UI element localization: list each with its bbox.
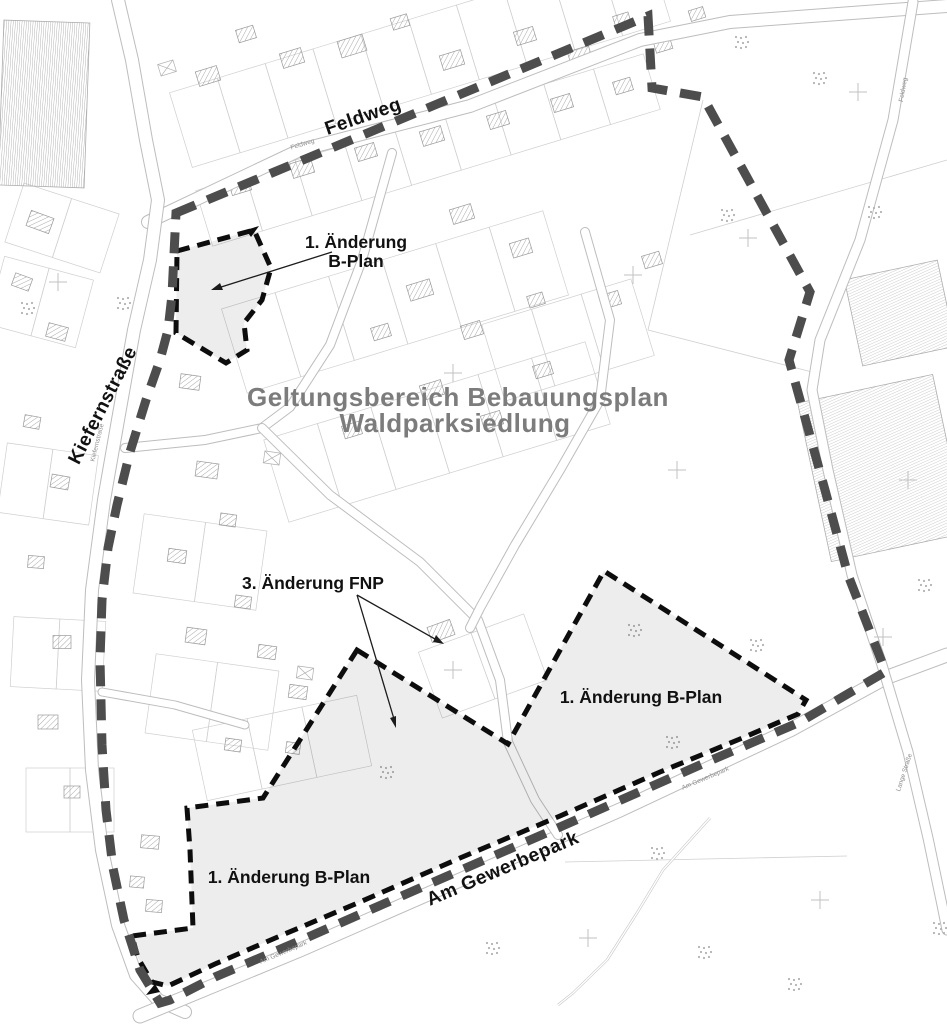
tree-dot — [825, 77, 827, 79]
tree-dot — [491, 943, 493, 945]
tree-dot — [31, 312, 33, 314]
tree-dot — [868, 206, 870, 208]
tree-dot — [870, 211, 872, 213]
tree-dot — [26, 303, 28, 305]
tree-dot — [880, 211, 882, 213]
tree-dot — [710, 951, 712, 953]
tree-dot — [737, 41, 739, 43]
tree-dot — [752, 644, 754, 646]
tree-dot — [930, 584, 932, 586]
tree-dot — [918, 589, 920, 591]
building — [641, 251, 662, 269]
tree-dot — [28, 308, 30, 310]
parcel — [10, 617, 60, 689]
tree-dot — [698, 946, 700, 948]
tree-dot — [928, 579, 930, 581]
tree-dot — [726, 210, 728, 212]
tree-dot — [703, 947, 705, 949]
tree-cluster — [486, 942, 500, 955]
tree-dot — [122, 298, 124, 300]
tree-dot — [117, 307, 119, 309]
tree-dot — [788, 978, 790, 980]
building — [235, 25, 256, 43]
tree-dot — [923, 580, 925, 582]
tree-dot — [127, 297, 129, 299]
building — [26, 210, 54, 233]
street-casing — [148, 6, 947, 222]
annotation-area-bottom: 1. Änderung B-Plan — [208, 867, 370, 887]
parcel — [26, 768, 70, 832]
planning-map: Feldweg Kiefernstraße Am Gewerbepark Gel… — [0, 0, 947, 1024]
tree-dot — [755, 650, 757, 652]
building — [38, 715, 58, 729]
parcel-block — [170, 0, 671, 167]
tree-dot — [750, 639, 752, 641]
tree-dot — [798, 978, 800, 980]
building — [460, 320, 483, 339]
tree-dot — [793, 979, 795, 981]
survey-cross — [624, 266, 642, 284]
building — [532, 361, 553, 379]
survey-cross — [49, 273, 67, 291]
building — [23, 415, 41, 430]
building — [64, 786, 80, 798]
parcel — [194, 522, 267, 610]
building — [486, 110, 509, 129]
parcel-block — [5, 183, 119, 273]
building — [234, 595, 252, 609]
tree-cluster — [721, 209, 735, 222]
tree-cluster — [21, 302, 35, 315]
industrial-building — [0, 20, 90, 188]
parcel — [217, 64, 288, 153]
tree-dot — [703, 957, 705, 959]
annotation-area1-line1: 1. Änderung — [305, 232, 407, 252]
tree-cluster — [788, 978, 802, 991]
survey-cross — [579, 929, 597, 947]
tree-dot — [820, 78, 822, 80]
tree-dot — [122, 308, 124, 310]
building — [513, 26, 536, 45]
tree-dot — [878, 206, 880, 208]
building — [11, 273, 32, 291]
tree-cluster — [698, 946, 712, 959]
tree-dot — [721, 209, 723, 211]
tree-dot — [943, 932, 945, 934]
tree-dot — [813, 82, 815, 84]
map-canvas: Feldweg Kiefernstraße Am Gewerbepark Gel… — [0, 0, 947, 1024]
tree-dot — [486, 952, 488, 954]
tree-dot — [33, 307, 35, 309]
tree-dot — [795, 984, 797, 986]
building — [46, 323, 69, 342]
tree-dot — [938, 923, 940, 925]
building — [427, 619, 455, 642]
garage-symbol — [158, 60, 177, 76]
building — [179, 374, 201, 391]
tree-dot — [656, 858, 658, 860]
building — [337, 34, 367, 58]
building — [195, 461, 219, 479]
map-title-line2: Waldparksiedlung — [340, 408, 571, 438]
tree-dot — [742, 42, 744, 44]
parcel — [206, 662, 279, 750]
building — [390, 14, 410, 30]
building — [140, 835, 159, 850]
tree-dot — [31, 302, 33, 304]
tree-dot — [708, 946, 710, 948]
tree-dot — [815, 77, 817, 79]
tree-dot — [873, 217, 875, 219]
tree-cluster — [117, 297, 131, 310]
tree-dot — [708, 956, 710, 958]
tree-dot — [818, 83, 820, 85]
tree-dot — [23, 307, 25, 309]
tree-dot — [26, 313, 28, 315]
tree-dot — [498, 947, 500, 949]
tree-dot — [651, 857, 653, 859]
tree-dot — [760, 649, 762, 651]
tree-cluster — [651, 847, 665, 860]
change-area-1 — [176, 230, 271, 363]
tree-dot — [745, 46, 747, 48]
tree-cluster — [918, 579, 932, 592]
tree-dot — [933, 932, 935, 934]
tree-cluster — [735, 36, 749, 49]
tree-dot — [928, 589, 930, 591]
tree-dot — [496, 942, 498, 944]
tree-dot — [868, 216, 870, 218]
building — [419, 126, 444, 147]
garage-symbol — [296, 666, 314, 680]
building — [406, 279, 434, 301]
tree-dot — [745, 36, 747, 38]
building — [50, 474, 70, 490]
tree-dot — [755, 640, 757, 642]
tree-dot — [486, 942, 488, 944]
parcel-block — [133, 514, 267, 610]
building — [688, 7, 706, 22]
tree-dot — [491, 953, 493, 955]
tree-dot — [760, 639, 762, 641]
building — [257, 644, 277, 659]
street — [88, 0, 185, 1012]
tree-cluster — [750, 639, 764, 652]
field-line — [648, 100, 703, 330]
tree-dot — [788, 988, 790, 990]
tree-dot — [938, 933, 940, 935]
tree-dot — [700, 951, 702, 953]
tree-dot — [731, 209, 733, 211]
survey-cross — [444, 364, 462, 382]
tree-dot — [923, 590, 925, 592]
parcel — [192, 719, 262, 801]
tree-dot — [823, 82, 825, 84]
tree-dot — [721, 219, 723, 221]
tree-dot — [750, 649, 752, 651]
building — [370, 323, 391, 341]
tree-dot — [757, 645, 759, 647]
tree-dot — [21, 312, 23, 314]
tree-dot — [726, 220, 728, 222]
building — [612, 77, 633, 95]
building — [449, 204, 474, 225]
tree-dot — [663, 852, 665, 854]
building — [288, 684, 308, 699]
building — [550, 93, 573, 112]
tree-dot — [790, 983, 792, 985]
parcel — [409, 5, 480, 94]
tree-dot — [920, 584, 922, 586]
tree-dot — [661, 847, 663, 849]
tree-dot — [933, 922, 935, 924]
building — [279, 48, 304, 69]
tree-dot — [496, 952, 498, 954]
tree-dot — [935, 927, 937, 929]
tree-dot — [823, 72, 825, 74]
tree-dot — [878, 216, 880, 218]
survey-cross — [811, 891, 829, 909]
tree-dot — [661, 857, 663, 859]
tree-dot — [129, 302, 131, 304]
tree-dot — [940, 928, 942, 930]
building — [146, 899, 163, 912]
tree-dot — [698, 956, 700, 958]
tree-dot — [651, 847, 653, 849]
tree-dot — [119, 302, 121, 304]
tree-dot — [656, 848, 658, 850]
tree-dot — [943, 922, 945, 924]
survey-cross — [444, 661, 462, 679]
field-line — [565, 856, 847, 862]
tree-dot — [723, 214, 725, 216]
tree-dot — [740, 37, 742, 39]
tree-dot — [798, 988, 800, 990]
tree-dot — [21, 302, 23, 304]
survey-cross — [849, 83, 867, 101]
parcel — [436, 227, 515, 328]
tree-dot — [124, 303, 126, 305]
annotation-area1-line2: B-Plan — [328, 251, 383, 271]
building — [224, 738, 242, 752]
industrial-building — [844, 260, 947, 366]
tree-dot — [733, 214, 735, 216]
tree-dot — [658, 853, 660, 855]
tree-dot — [918, 579, 920, 581]
field-line — [690, 160, 947, 235]
tree-dot — [813, 72, 815, 74]
building — [53, 636, 71, 649]
tree-dot — [740, 47, 742, 49]
tree-dot — [735, 46, 737, 48]
tree-cluster — [813, 72, 827, 85]
building — [219, 513, 237, 527]
parcel — [52, 199, 119, 273]
tree-dot — [873, 207, 875, 209]
tree-dot — [800, 983, 802, 985]
building — [185, 627, 207, 645]
annotation-fnp: 3. Änderung FNP — [242, 573, 384, 593]
parcel — [170, 78, 241, 167]
tree-dot — [127, 307, 129, 309]
tree-dot — [731, 219, 733, 221]
tree-dot — [735, 36, 737, 38]
tree-dot — [117, 297, 119, 299]
tree-dot — [793, 989, 795, 991]
street — [148, 6, 947, 222]
building — [130, 876, 145, 888]
tree-dot — [728, 215, 730, 217]
survey-cross — [668, 461, 686, 479]
building — [509, 238, 533, 258]
building — [28, 555, 45, 568]
tree-dot — [747, 41, 749, 43]
survey-cross — [739, 229, 757, 247]
tree-dot — [653, 852, 655, 854]
building — [439, 50, 464, 71]
tree-dot — [925, 585, 927, 587]
tree-dot — [762, 644, 764, 646]
tree-dot — [705, 952, 707, 954]
tree-dot — [875, 212, 877, 214]
tree-dot — [493, 948, 495, 950]
garage-symbol — [263, 451, 281, 465]
building — [354, 142, 377, 161]
annotation-area-right: 1. Änderung B-Plan — [560, 687, 722, 707]
tree-dot — [818, 73, 820, 75]
tree-dot — [488, 947, 490, 949]
building — [195, 66, 220, 87]
building — [167, 548, 187, 563]
